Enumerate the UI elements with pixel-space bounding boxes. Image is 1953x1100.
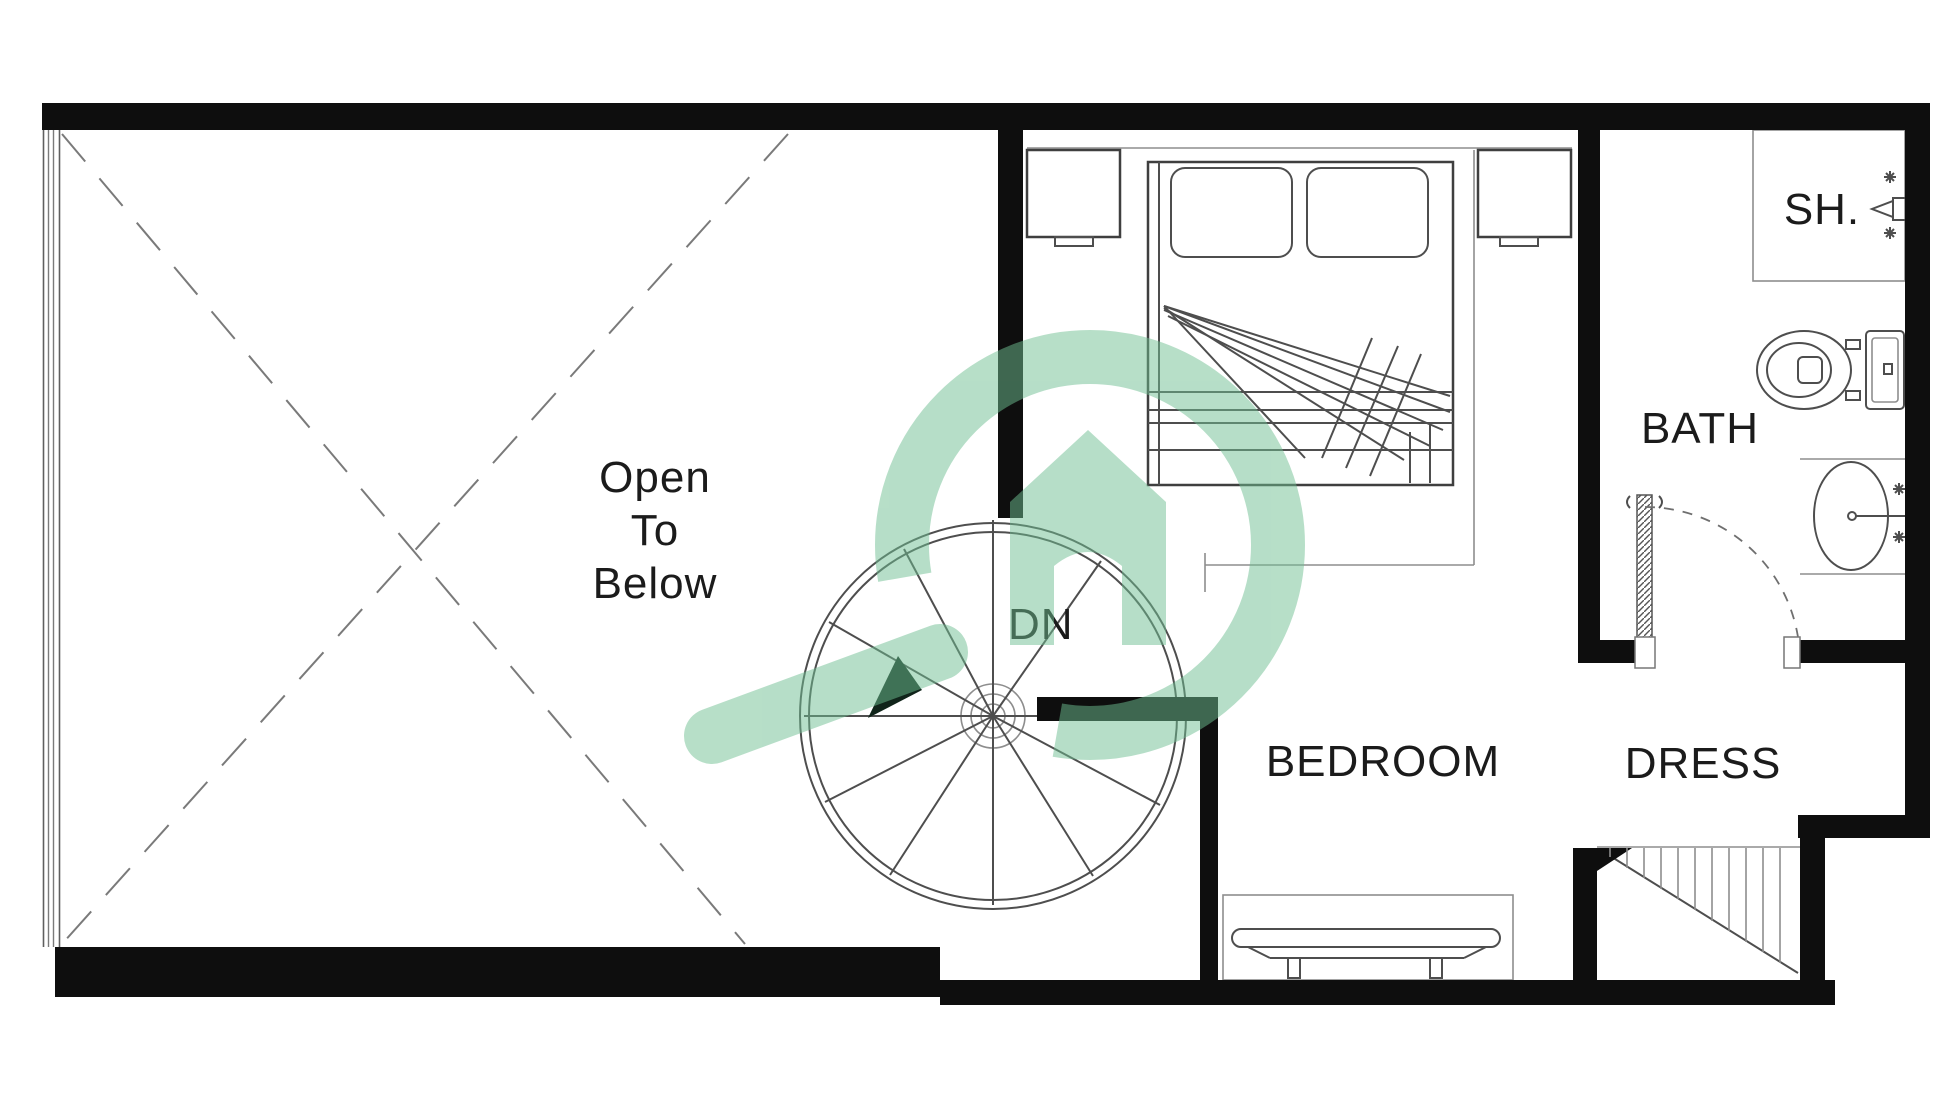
dress-label: DRESS [1625,739,1782,788]
floor-plan-drawing: Open To Below DN BEDROOM BATH DRESS SH. [0,0,1953,1100]
dresser-bench-icon [1223,895,1513,980]
double-bed-icon [1148,162,1453,485]
house-in-circle-logo [712,357,1278,736]
nightstand-icon [1027,150,1120,246]
logo-house-icon [1010,430,1166,645]
toilet-icon [1757,331,1904,409]
shower-head-icon [1872,171,1907,239]
sink-icon [1800,459,1905,574]
open-to-below-label-line2: To [631,506,679,555]
straight-stair-icon [1597,847,1800,973]
floor-plan-page: Open To Below DN BEDROOM BATH DRESS SH. [0,0,1953,1100]
bedroom-label: BEDROOM [1266,737,1500,786]
open-to-below-label-line1: Open [599,453,711,502]
bath-fixtures [1627,130,1907,662]
logo-swoosh-icon [712,652,940,736]
shower-label: SH. [1784,185,1860,234]
bath-label: BATH [1641,404,1759,453]
left-wall [44,112,60,947]
open-to-below-label-line3: Below [593,559,718,608]
nightstand-icon [1478,150,1571,246]
